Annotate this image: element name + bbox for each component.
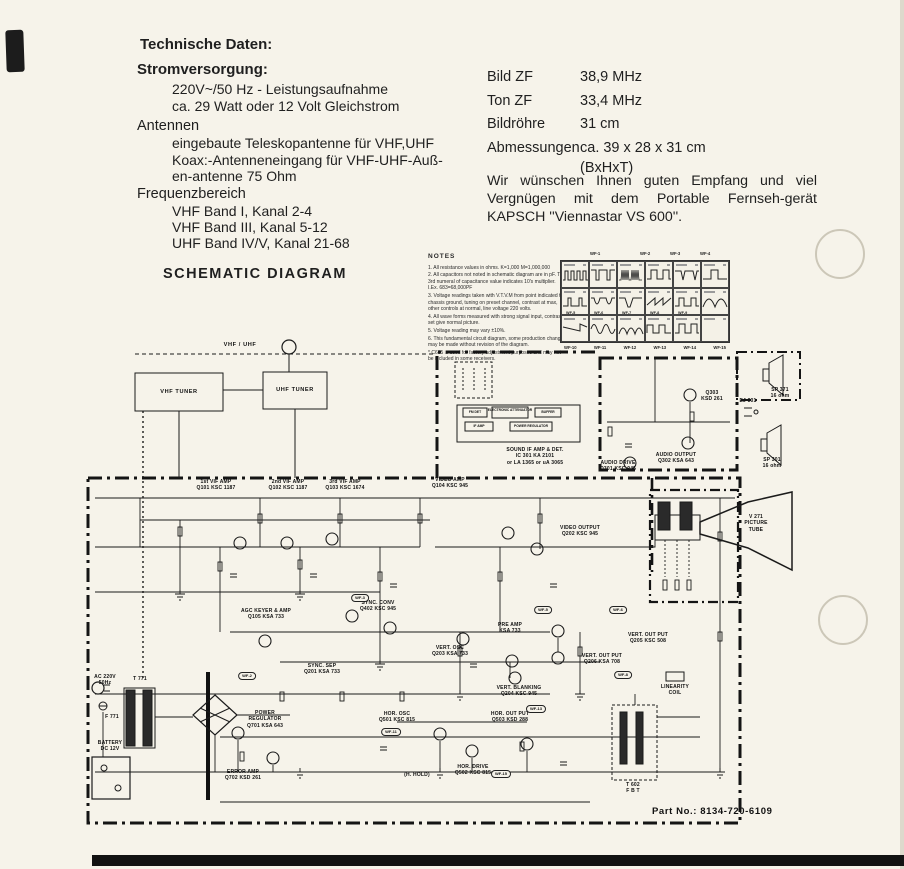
antennen-line: Koax:-Antenneneingang für VHF-UHF-Auß- bbox=[172, 152, 443, 169]
waveform-cell bbox=[589, 261, 617, 288]
waveform-cell bbox=[673, 261, 701, 288]
stromversorgung-line: 220V~/50 Hz - Leistungsaufnahme bbox=[172, 81, 388, 98]
wf-label: WF-8 bbox=[650, 311, 659, 315]
spec-row: Abmessungenca. 39 x 28 x 31 cm bbox=[487, 137, 706, 161]
block-sound-if-ic: SOUND IF AMP & DET.IC 301 KA 2101or LA 1… bbox=[506, 447, 563, 466]
punch-hole bbox=[815, 229, 865, 279]
resistor-symbols bbox=[178, 412, 722, 761]
linearity-coil-icon bbox=[666, 672, 684, 681]
wf-point-tag: WF-13 bbox=[526, 705, 546, 713]
block-sp371: SP 37116 ohm bbox=[771, 387, 790, 400]
block-q303: Q303KSD 261 bbox=[701, 390, 723, 403]
spec-table: Bild ZF38,9 MHz Ton ZF33,4 MHz Bildröhre… bbox=[487, 66, 706, 176]
section-frequenzbereich: Frequenzbereich bbox=[137, 186, 246, 202]
schematic-drawing bbox=[80, 332, 804, 832]
block-t602-fbt: T 602F B T bbox=[626, 782, 640, 795]
frequenzbereich-line: UHF Band IV/V, Kanal 21-68 bbox=[172, 235, 350, 252]
block-error-amp: ERROR AMPQ702 KSD 261 bbox=[225, 769, 261, 782]
block-ic-fm-det: FM DET bbox=[469, 410, 481, 414]
spec-row: Bildröhre31 cm bbox=[487, 113, 706, 137]
waveform-cell bbox=[645, 261, 673, 288]
wf-point-tag: WF-2 bbox=[238, 672, 256, 680]
note-item: 3. Voltage readings taken with V.T.V.M f… bbox=[428, 293, 566, 313]
note-item: 2. All capacitors not noted in schematic… bbox=[428, 272, 566, 292]
block-vert-output-2: VERT. OUT PUTQ206 KSA 708 bbox=[582, 653, 622, 666]
block-vert-output-1: VERT. OUT PUTQ205 KSC 508 bbox=[628, 632, 668, 645]
part-number: Part No.: 8134-720-6109 bbox=[652, 806, 772, 817]
block-hor-osc: HOR. OSCQ501 KSC 815 bbox=[379, 711, 415, 724]
block-power-regulator: POWERREGULATORQ701 KSA 643 bbox=[247, 710, 283, 729]
earphone-jack-icon bbox=[744, 408, 752, 416]
waveform-pulse-icon bbox=[702, 264, 728, 286]
block-audio-output: AUDIO OUTPUTQ302 KSA 643 bbox=[656, 452, 696, 465]
stromversorgung-line: ca. 29 Watt oder 12 Volt Gleichstrom bbox=[172, 98, 399, 115]
scan-edge-bottom bbox=[92, 855, 904, 866]
antennen-line: en-antenne 75 Ohm bbox=[172, 168, 297, 185]
frequenzbereich-line: VHF Band I, Kanal 2-4 bbox=[172, 203, 312, 220]
waveform-grid: WF-5 WF-6 WF-7 WF-8 WF-9 bbox=[560, 260, 730, 343]
section-antennen: Antennen bbox=[137, 118, 199, 134]
waveform-trapezoid-icon bbox=[618, 291, 644, 313]
frequenzbereich-line: VHF Band III, Kanal 5-12 bbox=[172, 219, 328, 236]
block-uhf-tuner: UHF TUNER bbox=[276, 387, 314, 394]
schematic-title: SCHEMATIC DIAGRAM bbox=[163, 266, 347, 282]
waveform-cell bbox=[701, 261, 729, 288]
wf-label: WF-6 bbox=[594, 311, 603, 315]
block-sp301: SP 30116 ohm bbox=[763, 457, 782, 470]
waveform-valley-icon bbox=[590, 291, 616, 313]
antennen-line: eingebaute Teleskopantenne für VHF,UHF bbox=[172, 135, 434, 152]
block-hor-output: HOR. OUT PUTQ503 KSD 288 bbox=[491, 711, 529, 724]
block-3rd-vif-amp: 3rd VIF AMPQ103 KSC 1674 bbox=[325, 479, 364, 492]
wf-label: WF-5 bbox=[566, 311, 575, 315]
block-vhf-tuner: VHF TUNER bbox=[160, 389, 197, 396]
block-ic-attenuator: ELECTRONIC ATTENUATOR bbox=[488, 408, 532, 412]
block-ic-if-amp: IF AMP bbox=[473, 424, 484, 428]
block-vert-blanking: VERT. BLANKINGQ204 KSC 945 bbox=[497, 685, 542, 698]
wf-point-tag: WF-6 bbox=[609, 606, 627, 614]
waveform-burst-icon bbox=[618, 264, 644, 286]
yoke-coil bbox=[658, 502, 670, 530]
flyback-transformer bbox=[612, 705, 657, 780]
waveform-negspike-icon bbox=[674, 264, 700, 286]
scan-edge-right bbox=[900, 0, 904, 869]
picture-tube-symbol bbox=[655, 492, 792, 590]
waveform-comb-icon bbox=[562, 264, 588, 286]
punch-hole bbox=[818, 595, 868, 645]
waveform-humps-icon bbox=[702, 291, 728, 313]
transformer-coil bbox=[143, 690, 152, 746]
capacitor-symbols bbox=[230, 444, 632, 765]
transistor-symbols bbox=[232, 389, 696, 764]
block-audio-drive: AUDIO DRIVEQ301 KSC 945 bbox=[600, 460, 636, 473]
wf-label: WF-3 bbox=[670, 251, 680, 256]
notes-title: NOTES bbox=[428, 253, 566, 262]
block-f771: F 771 bbox=[105, 714, 119, 720]
block-linearity-coil: LINEARITYCOIL bbox=[661, 684, 689, 697]
waveform-pulse-icon bbox=[674, 291, 700, 313]
waveform-top-labels: WF-1 WF-2 WF-3 WF-4 bbox=[560, 251, 730, 260]
wf-point-tag: WF-11 bbox=[381, 728, 401, 736]
note-item: 1. All resistance values in ohms. K=1,00… bbox=[428, 265, 566, 272]
note-item: 4. All wave forms measured with strong s… bbox=[428, 314, 566, 327]
waveform-cell bbox=[617, 261, 645, 288]
wf-label: WF-2 bbox=[640, 251, 650, 256]
block-battery: BATTERYDC 12V bbox=[98, 740, 122, 753]
waveform-pulse-icon bbox=[562, 291, 588, 313]
block-ic-buffer: BUFFER bbox=[541, 410, 554, 414]
block-1st-vif-amp: 1st VIF AMPQ101 KSC 1187 bbox=[196, 479, 235, 492]
block-sync-sep: SYNC. SEPQ201 KSA 733 bbox=[304, 663, 340, 676]
speaker-icons bbox=[744, 355, 783, 465]
spec-row: Ton ZF33,4 MHz bbox=[487, 90, 706, 114]
block-t771: T 771 bbox=[133, 676, 147, 682]
block-ej301: EJ 301 bbox=[739, 398, 756, 404]
block-2nd-vif-amp: 2nd VIF AMPQ102 KSC 1187 bbox=[268, 479, 307, 492]
wf-label: WF-4 bbox=[700, 251, 710, 256]
section-stromversorgung: Stromversorgung: bbox=[137, 61, 268, 78]
sound-ic-block bbox=[455, 362, 580, 442]
battery-connector bbox=[92, 757, 130, 799]
waveform-cell bbox=[701, 288, 729, 315]
schematic-diagram: VHF / UHF VHF TUNER UHF TUNER 1st VIF AM… bbox=[80, 332, 804, 832]
wf-label: WF-1 bbox=[590, 251, 600, 256]
wf-point-tag: WF-8 bbox=[614, 671, 632, 679]
waveform-cell bbox=[561, 261, 589, 288]
module-borders bbox=[88, 352, 800, 823]
yoke-coil bbox=[680, 502, 692, 530]
wf-label: WF-7 bbox=[622, 311, 631, 315]
waveform-negpulse-icon bbox=[590, 264, 616, 286]
block-h-hold: (H. HOLD) bbox=[404, 772, 430, 778]
wf-point-tag: WF-15 bbox=[491, 770, 511, 778]
block-ac-input: AC 220V50Hz bbox=[94, 674, 116, 687]
waveform-sawtooth-icon bbox=[646, 291, 672, 313]
transformer-coil bbox=[126, 690, 135, 746]
page-title: Technische Daten: bbox=[140, 36, 272, 53]
block-hor-drive: HOR. DRIVEQ502 KSC 815 bbox=[455, 764, 491, 777]
greeting-paragraph: Wir wünschen Ihnen guten Empfang und vie… bbox=[487, 172, 817, 226]
block-video-amp: VIDEO AMPQ104 KSC 945 bbox=[432, 477, 468, 490]
punch-mark bbox=[5, 30, 24, 73]
block-ic-power-regulator: POWER REGULATOR bbox=[514, 424, 548, 428]
wf-label: WF-9 bbox=[678, 311, 687, 315]
waveform-square-icon bbox=[646, 264, 672, 286]
spec-row: Bild ZF38,9 MHz bbox=[487, 66, 706, 90]
block-picture-tube: V 271PICTURETUBE bbox=[744, 514, 767, 533]
scanned-manual-page: Technische Daten: Stromversorgung: 220V~… bbox=[0, 0, 904, 869]
block-vert-osc: VERT. OSCQ203 KSA 733 bbox=[432, 645, 468, 658]
block-agc-keyer: AGC KEYER & AMPQ105 KSA 733 bbox=[241, 608, 291, 621]
block-video-output: VIDEO OUTPUTQ202 KSC 945 bbox=[560, 525, 600, 538]
block-antenna-label: VHF / UHF bbox=[224, 342, 257, 349]
wf-point-tag: WF-5 bbox=[534, 606, 552, 614]
block-pre-amp: PRE AMPKSA 733 bbox=[498, 622, 522, 635]
wf-point-tag: WF-3 bbox=[351, 594, 369, 602]
